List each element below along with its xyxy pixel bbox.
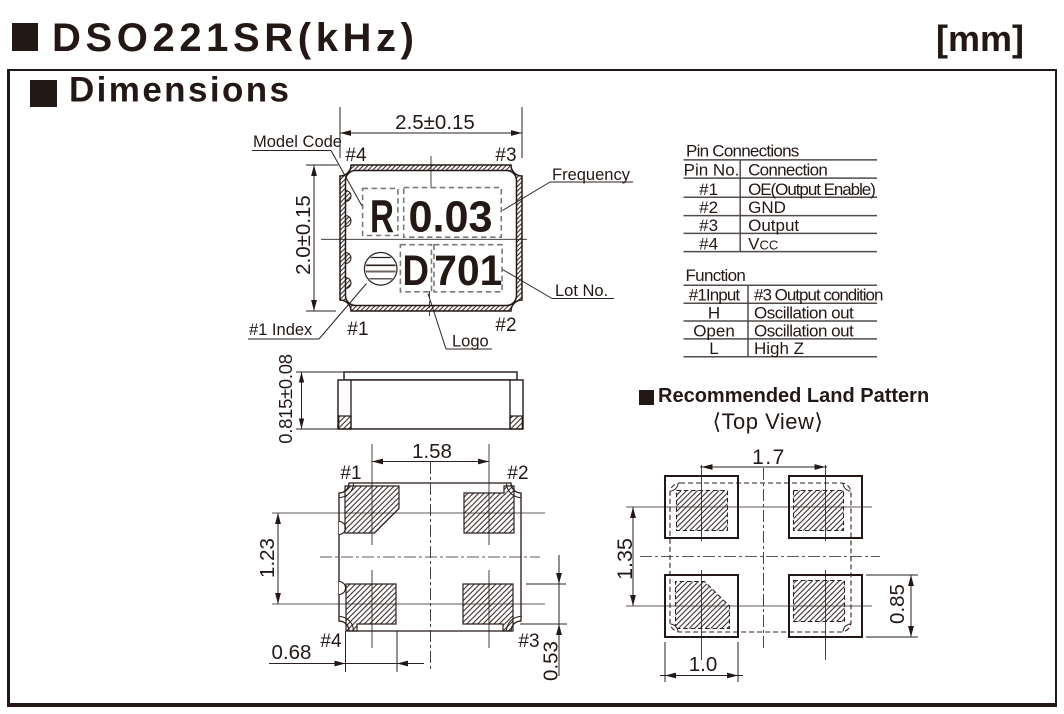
svg-text:#2: #2 — [495, 315, 516, 336]
svg-text:Open: Open — [693, 321, 735, 340]
svg-text:#1: #1 — [347, 319, 368, 340]
svg-text:0.68: 0.68 — [272, 641, 312, 664]
svg-text:Connection: Connection — [748, 161, 827, 180]
svg-text:Oscillation out: Oscillation out — [754, 321, 854, 340]
svg-text:Frequency: Frequency — [552, 166, 631, 184]
svg-text:Output: Output — [748, 216, 799, 235]
svg-text:#4: #4 — [699, 234, 718, 253]
svg-text:#4: #4 — [320, 631, 342, 652]
svg-text:Pin No.: Pin No. — [684, 161, 740, 180]
svg-text:1.35: 1.35 — [613, 538, 637, 580]
svg-text:Dimensions: Dimensions — [69, 71, 291, 110]
svg-text:#3: #3 — [495, 145, 516, 166]
svg-text:[mm]: [mm] — [936, 18, 1024, 59]
svg-text:L: L — [709, 339, 718, 358]
svg-text:2.5±0.15: 2.5±0.15 — [395, 111, 475, 134]
svg-text:#1: #1 — [340, 463, 361, 484]
svg-text:2.0±0.15: 2.0±0.15 — [292, 195, 315, 275]
svg-text:OE(Output Enable): OE(Output Enable) — [748, 180, 875, 199]
svg-text:#1 Index: #1 Index — [249, 321, 313, 339]
svg-text:1.58: 1.58 — [412, 440, 452, 463]
svg-text:D: D — [403, 247, 430, 295]
svg-text:#2: #2 — [507, 463, 528, 484]
svg-text:#3 Output condition: #3 Output condition — [754, 286, 883, 305]
svg-text:#1Input: #1Input — [689, 286, 741, 305]
svg-text:VCC: VCC — [748, 234, 778, 253]
svg-text:Recommended Land Pattern: Recommended Land Pattern — [658, 385, 929, 407]
svg-text:0.815±0.08: 0.815±0.08 — [275, 354, 296, 443]
svg-text:⟨Top View⟩: ⟨Top View⟩ — [712, 409, 823, 434]
svg-text:Pin Connections: Pin Connections — [686, 141, 799, 160]
svg-text:1.7: 1.7 — [752, 446, 786, 469]
svg-text:0.85: 0.85 — [886, 584, 909, 624]
svg-text:Model Code: Model Code — [253, 133, 342, 151]
svg-text:701: 701 — [434, 247, 502, 295]
svg-text:#2: #2 — [699, 198, 718, 217]
svg-text:0.53: 0.53 — [540, 641, 563, 681]
svg-text:R: R — [370, 190, 394, 242]
svg-text:1.23: 1.23 — [256, 538, 279, 578]
svg-text:GND: GND — [748, 198, 786, 217]
svg-text:Oscillation out: Oscillation out — [754, 304, 854, 323]
svg-text:#3: #3 — [699, 216, 718, 235]
svg-text:#3: #3 — [518, 631, 539, 652]
svg-text:#4: #4 — [345, 145, 367, 166]
svg-text:DSO221SR(kHz): DSO221SR(kHz) — [52, 16, 419, 60]
svg-text:Lot No.: Lot No. — [555, 282, 608, 300]
svg-text:Logo: Logo — [452, 333, 489, 351]
svg-text:0.03: 0.03 — [409, 193, 493, 242]
svg-text:H: H — [708, 304, 720, 323]
svg-text:1.0: 1.0 — [689, 653, 718, 676]
svg-text:High Z: High Z — [754, 339, 804, 358]
svg-text:Function: Function — [686, 266, 746, 285]
svg-text:#1: #1 — [699, 180, 718, 199]
